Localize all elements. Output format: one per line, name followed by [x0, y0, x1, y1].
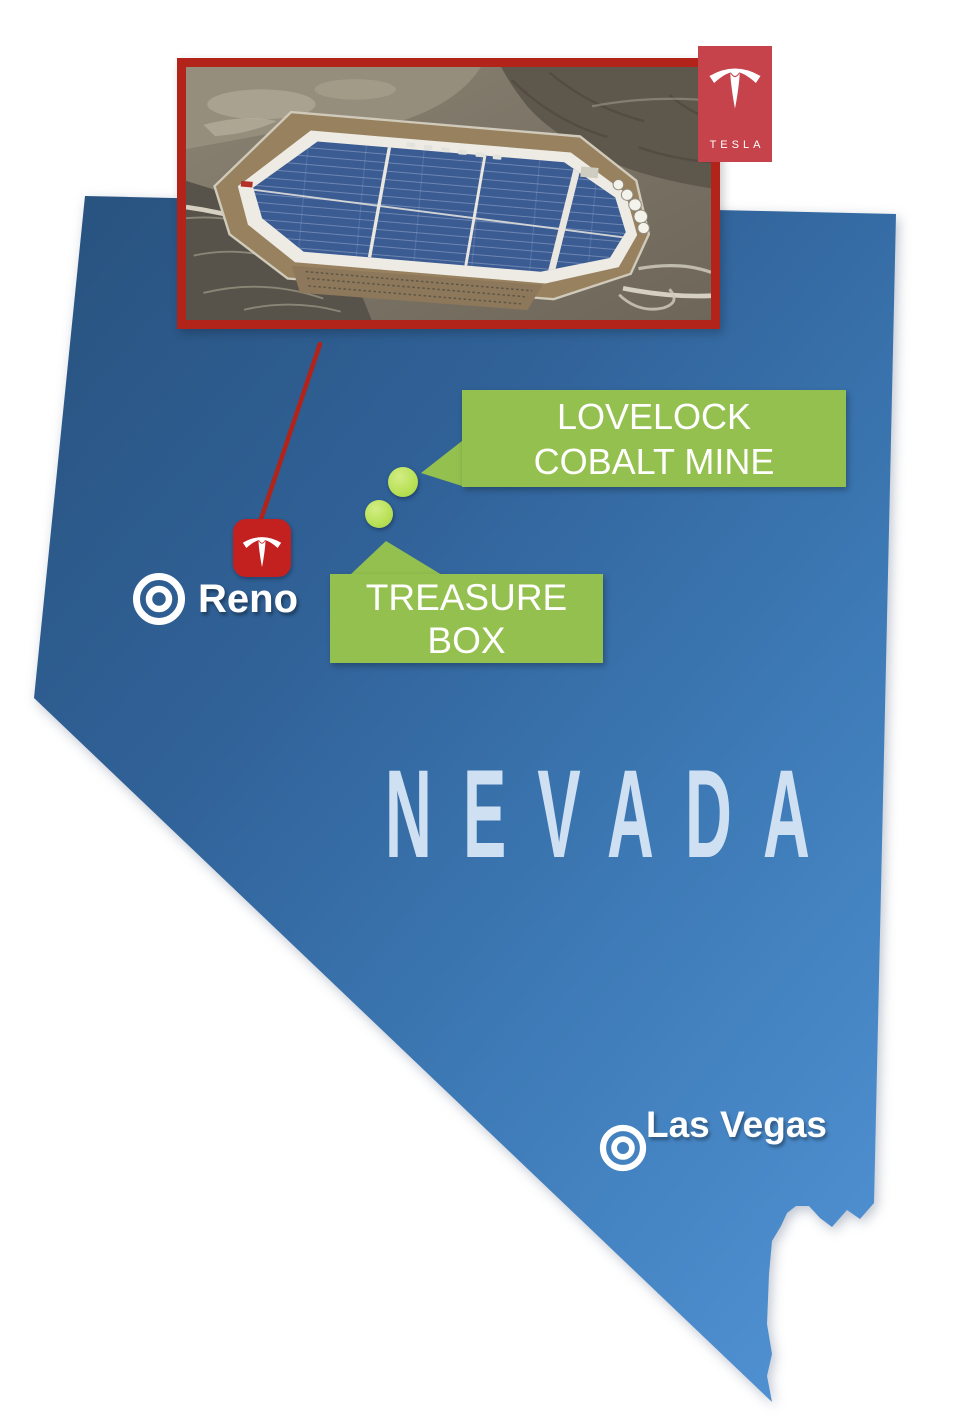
tesla-brand-badge: TESLA [698, 46, 772, 162]
las-vegas-bullseye-icon [599, 1124, 647, 1172]
tesla-sign [241, 181, 253, 188]
utility-structure [580, 167, 598, 179]
tesla-t-icon [706, 56, 764, 110]
tesla-t-icon [240, 528, 284, 568]
state-name-label: NEVADA [385, 745, 841, 884]
nevada-map-infographic: NEVADA [0, 0, 980, 1424]
treasure-callout-line2: BOX [330, 619, 603, 662]
las-vegas-label: Las Vegas [646, 1104, 827, 1146]
lovelock-mine-dot [388, 467, 418, 497]
lovelock-callout: LOVELOCK COBALT MINE [462, 390, 846, 487]
lovelock-callout-line2: COBALT MINE [462, 439, 846, 484]
lovelock-callout-line1: LOVELOCK [462, 394, 846, 439]
gigafactory-inset-photo [177, 58, 720, 329]
treasure-box-callout: TREASURE BOX [330, 574, 603, 663]
gigafactory-aerial-art [186, 67, 711, 320]
reno-label: Reno [198, 577, 298, 622]
gigafactory-pin [233, 519, 291, 577]
sand-patch [315, 79, 396, 100]
treasure-callout-line1: TREASURE [330, 576, 603, 619]
reno-bullseye-icon [132, 572, 186, 626]
tesla-wordmark: TESLA [698, 139, 772, 151]
treasure-box-dot [365, 500, 393, 528]
